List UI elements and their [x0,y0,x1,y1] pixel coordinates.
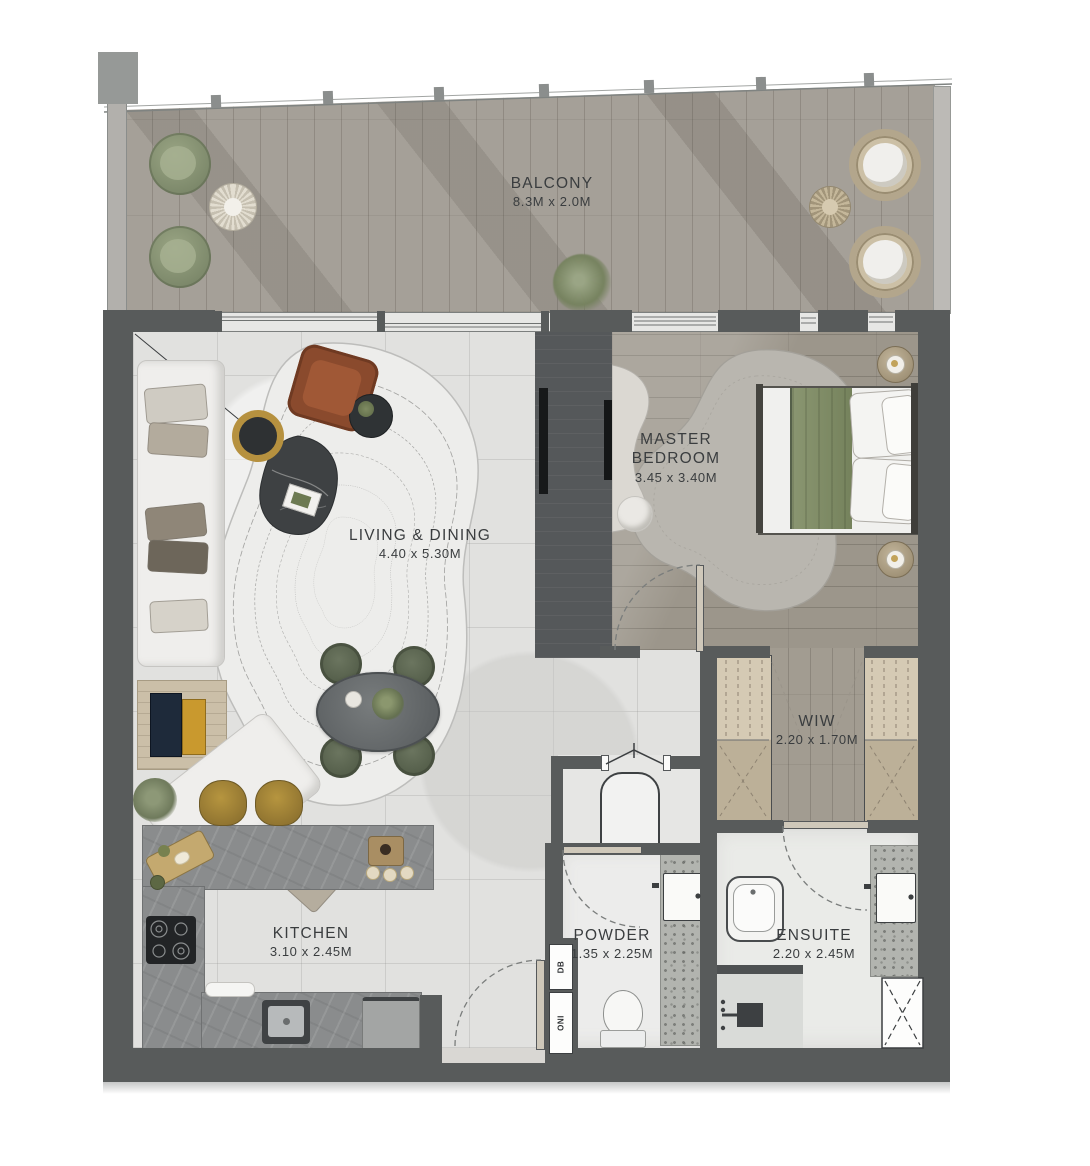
tv-master [604,400,612,480]
bread-platter [205,982,255,997]
floor-plan: DB ONI [0,0,1090,1166]
master-wall [600,646,640,658]
bathtub-basin [733,884,775,932]
sofa-pillow [147,539,209,574]
lounge-cushion [160,239,196,273]
left-wall [103,310,133,1082]
closet-left-wall [551,756,563,848]
powder-door-leaf [563,846,642,854]
dining-table-plant [372,688,404,720]
nightstand-lamp-bulb [891,555,898,562]
balcony-roofline [104,73,952,112]
canister [366,866,380,880]
wiw-top-wall [864,646,924,658]
top-wall [718,310,800,332]
sofa-pillow [144,383,209,424]
ensuite-door-leaf [783,821,869,829]
fringe-table-top [822,199,838,215]
sink-drain [283,1018,290,1025]
rattan-cushion [863,240,907,284]
floor-lamp-shade [239,417,277,455]
bed-duvet [790,388,852,529]
canister [400,866,414,880]
side-table [349,394,393,438]
console-book-gold [182,699,206,755]
entrance-threshold [442,1048,545,1063]
console-book-dark [150,693,182,757]
kitchen-plant [133,778,177,822]
side-table-plant [358,401,374,417]
top-wall [550,310,632,332]
master-window [868,312,895,332]
sofa-pillow [149,599,209,634]
nightstand-lamp-bulb [891,360,898,367]
ensuite-top-wall [717,820,783,833]
wiw-top-wall [712,646,770,658]
balcony-plant [553,254,611,312]
balcony-left-wall [107,100,127,314]
powder-sink [663,873,703,921]
dining-table-bowl [345,691,362,708]
living-sliding-door [215,312,550,332]
ensuite-top-wall [867,820,918,833]
sofa-pillow [147,422,209,458]
ensuite-sink [876,873,916,923]
media-wall [535,332,612,658]
shower-head [737,1003,763,1027]
top-wall [818,310,868,332]
kitchen-stool [199,780,247,826]
washing-machine [600,772,660,850]
kitchen-stool [255,780,303,826]
shaft-oni-label: ONI [557,1015,566,1031]
master-door-leaf [696,565,704,652]
pouf-stool [617,496,653,532]
olive-dish [150,875,165,890]
tv-living [539,388,548,494]
cooktop-hob [146,916,196,964]
bifold-post [601,755,609,771]
neighbor-wall-fragment [98,52,138,104]
dishwasher [362,997,420,1053]
right-wall [918,330,950,1082]
master-window-small [800,312,818,332]
wardrobe-right [864,655,920,824]
wardrobe-left [715,655,772,824]
pleated-table-top [224,198,242,216]
shaft-db-label: DB [557,961,566,974]
toilet-tank [600,1030,646,1048]
kitchen-counter-left [142,886,205,1050]
sofa-pillow [144,502,207,542]
closet-top-wall [668,756,717,769]
canister [383,868,397,882]
balcony-right-wall [933,86,951,314]
lounge-cushion [160,146,196,180]
entrance-door-leaf [536,960,545,1050]
rattan-cushion [863,143,907,187]
top-wall [895,310,950,332]
shaft-oni: ONI [549,992,573,1054]
master-window [632,312,718,332]
entrance-wall-stub [420,995,442,1048]
bed-footboard [756,384,763,533]
coffee-machine-dot [380,844,391,855]
bifold-post [663,755,671,771]
shower-half-wall [717,965,803,974]
shaft-db: DB [549,944,573,990]
